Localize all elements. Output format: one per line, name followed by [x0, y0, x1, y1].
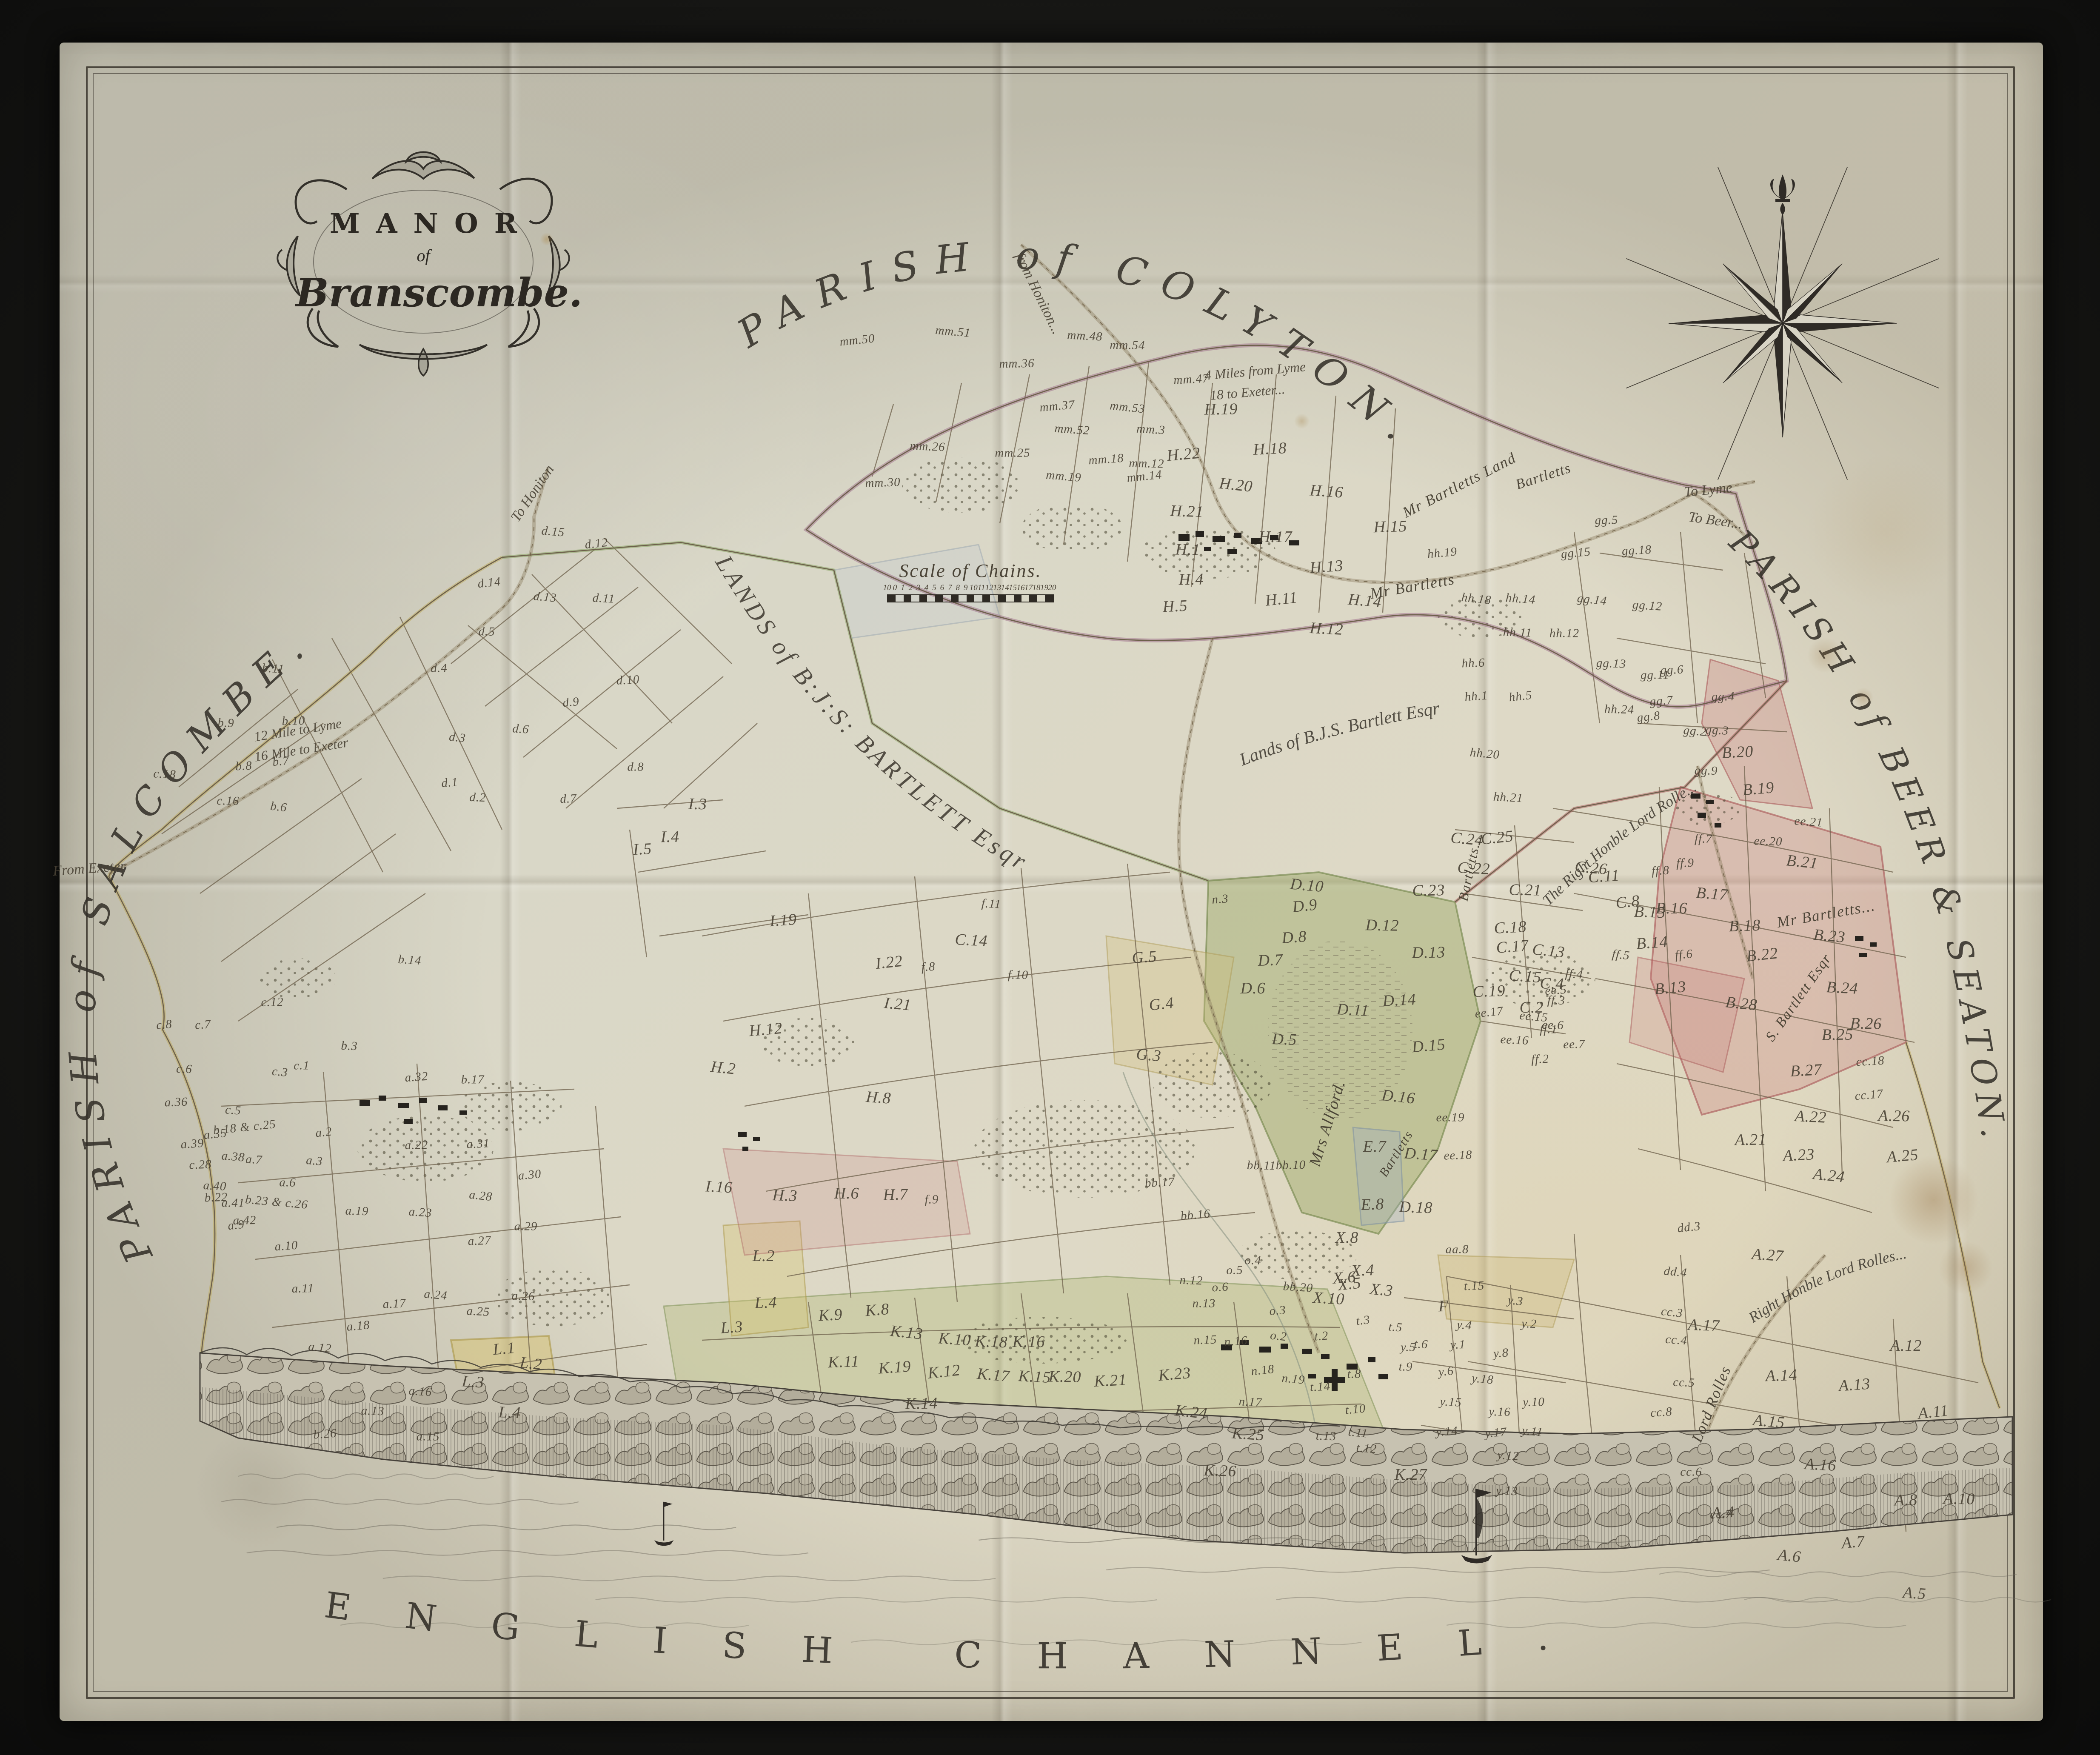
parcel-label: B.24 — [1826, 978, 1859, 998]
parcel-label: hh.11 — [1503, 625, 1532, 640]
parcel-label: C.21 — [1509, 880, 1542, 899]
parcel-label: o.5 — [1226, 1263, 1243, 1278]
parcel-label: A.4 — [1711, 1503, 1735, 1523]
parcel-label: a.26 — [511, 1289, 535, 1304]
parcel-label: c.12 — [261, 995, 284, 1010]
parcel-label: A.26 — [1878, 1106, 1910, 1125]
parcel-label: I.5 — [633, 839, 652, 859]
scale-tick: 9 — [964, 583, 968, 593]
parcel-label: H.13 — [1309, 556, 1344, 577]
parcel-label: a.16 — [408, 1384, 433, 1400]
parcel-label: b.9 — [217, 716, 234, 731]
parcel-label: t.2 — [1314, 1329, 1329, 1344]
scale-tick: 8 — [956, 583, 960, 593]
parcel-label: ff.7 — [1695, 832, 1712, 846]
parcel-label: f.10 — [1008, 968, 1029, 982]
parcel-label: mm.52 — [1054, 422, 1090, 438]
parcel-label: gg.2 — [1683, 723, 1707, 739]
parcel-label: f.8 — [921, 960, 936, 975]
parcel-label: C.25 — [1480, 827, 1514, 849]
scale-title: Scale of Chains. — [887, 560, 1054, 582]
parcel-label: ee.20 — [1754, 834, 1783, 849]
parcel-label: t.10 — [1344, 1401, 1366, 1417]
parcel-label: mm.12 — [1129, 457, 1164, 471]
parcel-label: gg.6 — [1660, 663, 1684, 678]
scale-tick: 3 — [916, 583, 921, 593]
parcel-label: K.13 — [889, 1321, 924, 1344]
parcel-label: gg.7 — [1649, 693, 1674, 709]
sea-title: ENGLISH CHANNEL. — [322, 1584, 1605, 1677]
parcel-label: d.13 — [533, 589, 557, 605]
parcel-label: ff.9 — [1676, 856, 1694, 870]
parcel-label: a.28 — [468, 1188, 493, 1204]
parcel-label: mm.3 — [1136, 422, 1165, 437]
parcel-label: D.18 — [1399, 1198, 1433, 1218]
parcel-label: b.14 — [398, 953, 422, 968]
parcel-label: o.3 — [1269, 1303, 1287, 1318]
parcel-label: hh.24 — [1604, 702, 1635, 717]
parcel-label: H.8 — [865, 1087, 892, 1108]
parcel-label: y.3 — [1507, 1293, 1524, 1309]
parcel-label: D.15 — [1411, 1035, 1446, 1057]
scale-cells — [887, 594, 1054, 602]
parcel-label: aa.8 — [1446, 1243, 1469, 1257]
parcel-label: y.16 — [1489, 1405, 1511, 1419]
parcel-label: hh.14 — [1505, 591, 1536, 607]
parcel-label: A.21 — [1735, 1130, 1766, 1149]
parcel-label: b.17 — [461, 1073, 485, 1087]
parcel-label: H.18 — [1253, 439, 1287, 459]
parcel-label: B.22 — [1746, 944, 1779, 966]
parcel-label: c.5 — [225, 1103, 242, 1118]
parcel-label: n.3 — [1211, 892, 1229, 907]
parcel-label: a.27 — [468, 1234, 491, 1249]
parcel-label: a.23 — [408, 1205, 433, 1221]
parcel-label: H.15 — [1373, 517, 1407, 537]
parcel-label: X.8 — [1335, 1228, 1359, 1247]
parcel-label: A.6 — [1777, 1545, 1802, 1566]
parcel-label: a.25 — [466, 1304, 490, 1319]
parcel-label: hh.5 — [1508, 688, 1533, 705]
parcel-label: d.3 — [448, 730, 466, 746]
parcel-label: D.12 — [1365, 916, 1399, 935]
parcel-label: H.2 — [710, 1057, 736, 1079]
parcel-label: C.13 — [1531, 940, 1566, 962]
parcel-label: L.2 — [753, 1247, 775, 1265]
parcel-label: A.23 — [1783, 1145, 1815, 1165]
parcel-label: a.29 — [514, 1220, 538, 1234]
parcel-label: d.2 — [469, 790, 486, 805]
parcel-label: ee.7 — [1563, 1037, 1585, 1052]
parcel-label: gg.4 — [1711, 690, 1735, 704]
parcel-label: a.17 — [382, 1296, 406, 1312]
parcel-label: H.4 — [1178, 570, 1204, 589]
parcel-label: a.38 — [221, 1149, 245, 1165]
parcel-label: a.18 — [346, 1318, 370, 1334]
parcel-label: y.14 — [1435, 1424, 1458, 1439]
scale-tick: 14 — [1001, 583, 1009, 593]
parcel-label: K.12 — [927, 1361, 961, 1383]
parcel-label: K.15 — [1018, 1367, 1051, 1387]
scale-tick: 10 — [970, 583, 978, 593]
parcel-label: ff.6 — [1675, 947, 1694, 963]
parcel-label: a.30 — [517, 1167, 542, 1183]
parcel-label: H.6 — [834, 1184, 859, 1203]
parcel-label: dd.3 — [1677, 1219, 1701, 1236]
parcel-label: bb.20 — [1283, 1279, 1313, 1296]
parcel-label: mm.25 — [995, 446, 1030, 460]
scale-tick: 5 — [932, 583, 936, 593]
parcel-label: hh.1 — [1464, 689, 1489, 705]
parcel-label: K.20 — [1048, 1367, 1081, 1386]
parcel-label: A.7 — [1841, 1532, 1866, 1553]
scale-tick: 13 — [993, 583, 1001, 593]
parcel-label: d.5 — [478, 625, 495, 639]
parcel-label: L.4 — [498, 1403, 521, 1422]
parcel-label: c.7 — [194, 1018, 211, 1033]
parcel-label: A.24 — [1812, 1164, 1846, 1187]
parcel-label: C.17 — [1495, 936, 1529, 958]
scale-tick: 10 — [883, 583, 891, 593]
scale-tick: 6 — [940, 583, 944, 593]
parcel-label: y.5 — [1401, 1341, 1416, 1355]
parcel-label: a.19 — [345, 1204, 369, 1219]
parcel-label: ee.17 — [1474, 1004, 1504, 1021]
parcel-label: H.11 — [1264, 588, 1298, 610]
parcel-label: G.3 — [1136, 1045, 1162, 1066]
parcel-label: t.12 — [1356, 1441, 1377, 1456]
parcel-label: b.11 — [262, 661, 285, 676]
parcel-label: y.18 — [1471, 1371, 1494, 1387]
compass-rose-icon — [1626, 167, 1939, 479]
parcel-label: gg.15 — [1561, 545, 1592, 562]
parcel-label: K.19 — [878, 1357, 912, 1378]
parcel-label: K.16 — [1013, 1333, 1045, 1351]
parcel-label: y.4 — [1456, 1318, 1472, 1333]
parcel-label: K.10 — [938, 1329, 972, 1350]
parcel-label: B.23 — [1813, 925, 1846, 947]
cartouche: MANOR of Branscombe. — [296, 208, 551, 316]
parcel-label: K.17 — [976, 1364, 1010, 1386]
parcel-label: B.21 — [1786, 851, 1819, 873]
parcel-label: X.3 — [1369, 1280, 1394, 1301]
scale-tick: 4 — [924, 583, 929, 593]
parcel-label: t.5 — [1388, 1320, 1403, 1335]
parcel-label: H.16 — [1309, 481, 1344, 502]
parcel-label: D.14 — [1382, 990, 1416, 1010]
parcel-label: gg.13 — [1596, 656, 1626, 671]
parcel-label: A.22 — [1795, 1107, 1827, 1127]
parcel-label: y.17 — [1484, 1425, 1507, 1441]
parcel-label: y.11 — [1521, 1424, 1544, 1440]
parcel-label: d.12 — [584, 536, 609, 552]
parcel-label: H.3 — [772, 1186, 798, 1205]
parcel-label: hh.19 — [1427, 545, 1458, 562]
parcel-label: L.2 — [519, 1353, 543, 1374]
parcel-label: mm.30 — [865, 475, 901, 491]
parcel-label: a.3 — [305, 1153, 323, 1169]
scale-tick: 16 — [1017, 583, 1025, 593]
parcel-label: d.1 — [441, 775, 458, 790]
cartouche-name: Branscombe. — [296, 270, 551, 316]
parcel-label: K.11 — [827, 1352, 860, 1372]
parcel-label: mm.48 — [1067, 328, 1103, 344]
parcel-label: B.26 — [1850, 1014, 1882, 1033]
parcel-label: ff.5 — [1611, 947, 1630, 963]
parcel-label: I.19 — [769, 910, 797, 930]
parcel-label: ee.21 — [1794, 814, 1823, 830]
parcel-label: c.16 — [217, 794, 240, 808]
parcel-label: H.21 — [1170, 502, 1204, 522]
parcel-label: A.14 — [1765, 1366, 1798, 1386]
parcel-label: a.32 — [405, 1070, 429, 1085]
parcel-label: D.8 — [1281, 927, 1307, 947]
parcel-label: H.19 — [1204, 400, 1238, 419]
parcel-label: K.14 — [905, 1394, 938, 1413]
parcel-label: cc.17 — [1854, 1087, 1884, 1104]
parcel-label: a.12 — [308, 1340, 332, 1356]
scale-tick: 12 — [985, 583, 993, 593]
parcel-label: y.13 — [1496, 1484, 1518, 1499]
parcel-label: mm.47 — [1173, 371, 1210, 387]
parcel-label: a.42 — [233, 1213, 256, 1228]
parcel-label: B.28 — [1725, 993, 1758, 1015]
parcel-label: a.13 — [361, 1404, 385, 1419]
parcel-label: o.6 — [1212, 1280, 1229, 1295]
parcel-label: ee.18 — [1444, 1148, 1472, 1163]
cartouche-of: of — [296, 245, 551, 265]
parcel-label: y.1 — [1450, 1338, 1466, 1352]
scale-tick: 1 — [901, 583, 905, 593]
parcel-label: a.40 — [203, 1179, 227, 1194]
parcel-label: gg.3 — [1705, 723, 1729, 738]
parcel-label: D.13 — [1412, 943, 1446, 962]
parcel-label: A.8 — [1894, 1491, 1917, 1510]
parcel-label: K.18 — [975, 1332, 1008, 1352]
parcel-label: cc.3 — [1661, 1304, 1684, 1321]
parcel-label: D.7 — [1258, 950, 1283, 970]
scale-tick: 19 — [1040, 583, 1048, 593]
parcel-label: L.1 — [492, 1338, 516, 1359]
parcel-label: ff.8 — [1651, 863, 1670, 878]
parcel-label: A.27 — [1751, 1244, 1784, 1265]
parcel-label: A.11 — [1917, 1401, 1949, 1423]
parcel-label: D.5 — [1272, 1030, 1297, 1049]
scale-tick: 17 — [1024, 583, 1033, 593]
parcel-label: ff.1 — [1540, 1023, 1558, 1037]
parcel-label: c.18 — [153, 767, 177, 782]
parcel-label: B.13 — [1654, 977, 1687, 999]
parcel-label: y.10 — [1523, 1395, 1545, 1410]
parcel-label: hh.12 — [1549, 627, 1579, 641]
scale-tick: 11 — [978, 583, 985, 593]
parcel-label: hh.20 — [1469, 746, 1501, 762]
parcel-label: A.15 — [1752, 1411, 1786, 1432]
parcel-label: C.2 — [1520, 998, 1544, 1017]
parcel-label: H.1 — [1175, 540, 1201, 559]
scale-tick: 2 — [909, 583, 913, 593]
parcel-label: d.8 — [627, 760, 644, 774]
parcel-label: I.16 — [705, 1177, 733, 1197]
parcel-label: B.20 — [1721, 742, 1754, 762]
parcel-label: A.10 — [1943, 1489, 1975, 1508]
parcel-label: a.10 — [274, 1238, 299, 1254]
parcel-label: cc.8 — [1650, 1405, 1673, 1421]
parcel-label: b.3 — [341, 1039, 358, 1053]
parcel-label: L.4 — [754, 1293, 777, 1313]
scale-ticks: 1001234567891011121314151617181920 — [887, 583, 1054, 594]
parcel-label: y.2 — [1521, 1317, 1537, 1331]
parcel-label: C.15 — [1508, 966, 1542, 987]
parcel-label: y.6 — [1438, 1364, 1454, 1380]
parcel-label: D.6 — [1241, 979, 1266, 998]
parcel-label: C.14 — [954, 930, 988, 950]
parcel-label: A.12 — [1890, 1336, 1922, 1355]
parcel-label: bb.10 — [1276, 1158, 1306, 1173]
scale-tick: 0 — [893, 583, 897, 593]
parcel-label: a.15 — [417, 1430, 440, 1444]
parcel-label: D.11 — [1336, 1000, 1370, 1020]
parcel-label: C.18 — [1493, 917, 1527, 938]
parcel-label: E.8 — [1361, 1195, 1384, 1214]
scale-tick: 15 — [1009, 583, 1017, 593]
parcel-label: gg.5 — [1595, 513, 1618, 528]
parcel-label: c.3 — [271, 1064, 289, 1080]
parcel-label: C.26 — [1574, 857, 1608, 879]
parcel-label: C.8 — [1615, 891, 1641, 913]
parcel-label: E.7 — [1363, 1137, 1387, 1156]
parcel-label: c.8 — [156, 1017, 173, 1033]
parcel-label: n.18 — [1250, 1362, 1275, 1379]
parcel-label: H.12 — [748, 1019, 783, 1041]
parcel-label: a.39 — [180, 1136, 205, 1152]
parcel-label: F — [1438, 1297, 1449, 1316]
parcel-label: B.19 — [1742, 778, 1775, 799]
parcel-label: d.6 — [512, 722, 529, 737]
parcel-label: d.7 — [560, 792, 577, 806]
parcel-label: hh.21 — [1493, 790, 1524, 806]
parcel-label: A.5 — [1902, 1583, 1927, 1604]
parcel-label: cc.6 — [1680, 1465, 1702, 1479]
parcel-label: K.25 — [1231, 1424, 1265, 1444]
parcel-label: A.16 — [1804, 1455, 1837, 1475]
parcel-label: ff.4 — [1565, 967, 1584, 982]
parcel-label: H.7 — [883, 1185, 908, 1204]
parcel-label: a.24 — [423, 1287, 448, 1303]
parcel-label: a.31 — [466, 1136, 490, 1152]
parcel-label: t.15 — [1464, 1279, 1484, 1294]
parcel-label: D.16 — [1381, 1086, 1416, 1108]
parcel-label: y.8 — [1493, 1346, 1509, 1361]
parcel-label: ee.19 — [1436, 1111, 1465, 1125]
parcel-label: gg.12 — [1632, 598, 1663, 614]
parcel-label: L.3 — [461, 1372, 485, 1392]
parcel-label: mm.18 — [1088, 451, 1124, 468]
parcel-label: K.21 — [1093, 1370, 1127, 1391]
parcel-label: d.14 — [477, 575, 502, 591]
photographed-manuscript-map: PARISH of COLYTON. PARISH of SALCOMBE. P… — [0, 0, 2100, 1755]
parcel-label: cc.4 — [1665, 1333, 1688, 1348]
parcel-label: gg.9 — [1694, 764, 1718, 778]
parcel-label: f.11 — [981, 896, 1001, 911]
parcel-label: a.7 — [245, 1152, 263, 1167]
parcel-label: ee.16 — [1500, 1033, 1529, 1048]
parcel-label: K.8 — [865, 1300, 890, 1321]
parcel-label: B.25 — [1821, 1025, 1853, 1044]
parcel-label: a.2 — [315, 1125, 333, 1141]
parcel-label: n.16 — [1224, 1334, 1248, 1350]
parcel-label: c.1 — [294, 1059, 310, 1073]
parcel-label: d.15 — [541, 524, 565, 540]
parcel-label: ff.2 — [1531, 1052, 1549, 1067]
parcel-label: B.18 — [1729, 916, 1761, 936]
parcel-label: o.4 — [1244, 1253, 1261, 1268]
parcel-label: a.35 — [203, 1126, 228, 1143]
parcel-label: c.28 — [189, 1158, 212, 1173]
parcel-label: D.10 — [1290, 875, 1324, 896]
parcel-label: I.22 — [875, 952, 904, 973]
scale-tick: 18 — [1033, 583, 1041, 593]
parcel-label: hh.6 — [1461, 656, 1485, 671]
scale-bar: Scale of Chains. 10012345678910111213141… — [887, 560, 1054, 602]
parcel-label: K.24 — [1174, 1401, 1208, 1423]
parcel-label: G.5 — [1131, 947, 1158, 967]
parcel-label: mm.36 — [999, 357, 1035, 371]
parcel-label: gg.18 — [1621, 543, 1652, 559]
parcel-label: n.17 — [1238, 1395, 1262, 1410]
parcel-label: B.16 — [1656, 899, 1688, 918]
parcel-label: H.22 — [1166, 444, 1201, 465]
scale-tick: 7 — [948, 583, 952, 593]
parcel-label: b.6 — [270, 799, 288, 815]
fleur-de-lis-icon — [1770, 174, 1795, 215]
parcel-label: f.9 — [924, 1193, 939, 1207]
parcel-label: A.13 — [1838, 1374, 1871, 1395]
parcel-label: dd.4 — [1663, 1264, 1687, 1280]
parcel-label: t.9 — [1398, 1360, 1412, 1374]
parcel-label: d.11 — [592, 591, 615, 606]
parcel-label: mm.26 — [910, 439, 945, 454]
parcel-label: a.36 — [164, 1095, 188, 1110]
parcel-label: G.4 — [1148, 993, 1175, 1015]
parcel-label: t.13 — [1315, 1429, 1336, 1444]
estate-title-north-east: Lands of B.J.S. Bartlett Esqr — [1236, 699, 1441, 770]
parcel-label: I.4 — [661, 828, 680, 847]
parcel-label: K.27 — [1395, 1465, 1427, 1484]
parcel-label: n.19 — [1281, 1371, 1305, 1387]
parcel-label: C.23 — [1412, 881, 1445, 900]
parcel-label: ff.3 — [1547, 993, 1565, 1008]
parcel-label: cc.5 — [1673, 1375, 1695, 1390]
parcel-label: d.10 — [616, 673, 640, 688]
parcel-label: H.5 — [1162, 596, 1188, 616]
parcel-label: a.11 — [291, 1281, 314, 1296]
parcel-label: b.8 — [235, 759, 253, 773]
parcel-label: n.12 — [1179, 1273, 1203, 1288]
parcel-label: K.26 — [1204, 1461, 1237, 1481]
parcel-label: gg.8 — [1636, 709, 1661, 725]
parcel-label: y.12 — [1497, 1448, 1520, 1464]
parcel-label: B.27 — [1790, 1060, 1823, 1081]
parcel-label: A.17 — [1688, 1316, 1720, 1336]
parcel-label: d.9 — [562, 695, 580, 710]
parcel-label: cc.18 — [1856, 1054, 1885, 1069]
parcel-label: n.15 — [1193, 1333, 1217, 1348]
parcel-label: d.4 — [431, 661, 448, 676]
parcel-label: X.10 — [1312, 1288, 1345, 1309]
parcel-label: D.9 — [1291, 895, 1318, 916]
parcel-label: H.12 — [1309, 619, 1344, 639]
